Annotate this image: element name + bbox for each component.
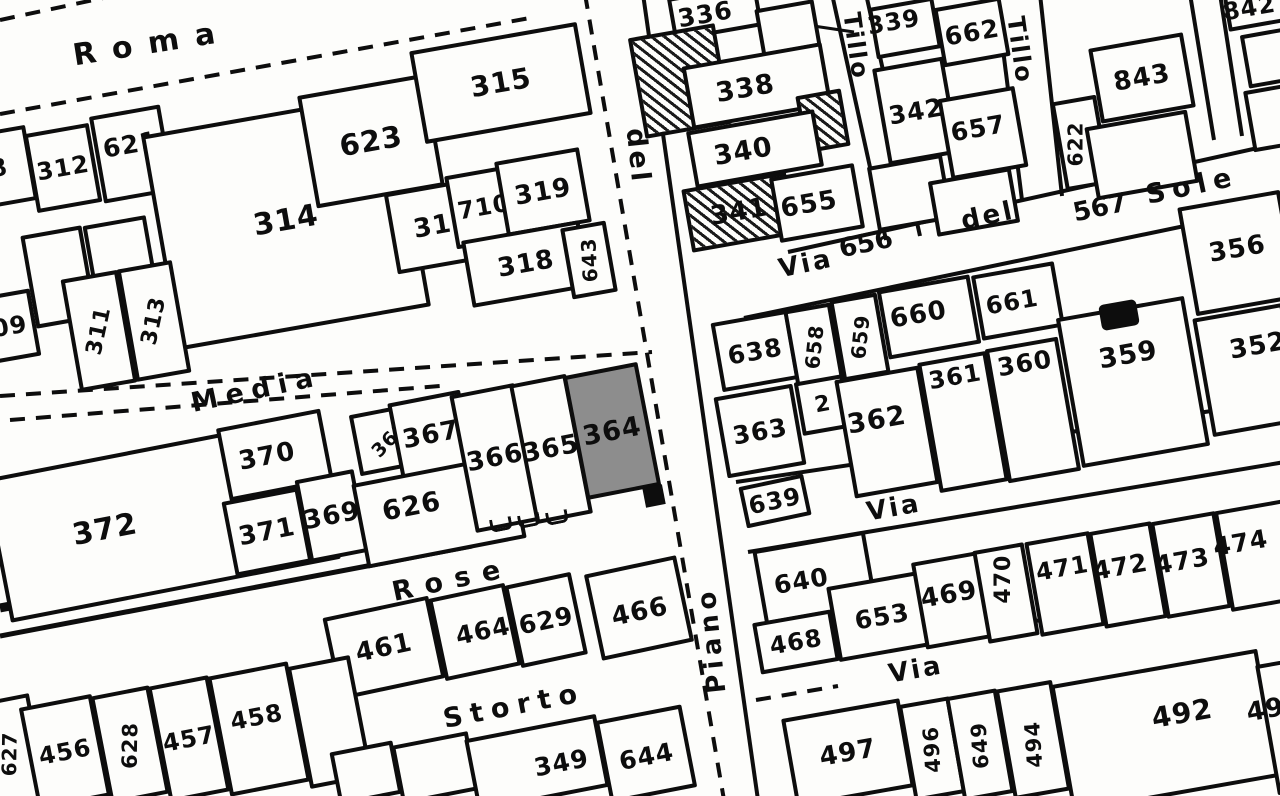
parcel-number: 627 bbox=[0, 731, 19, 776]
parcel-662: 662 bbox=[933, 0, 1010, 67]
parcel-number: 371 bbox=[236, 514, 297, 550]
parcel-number: 842 bbox=[1221, 0, 1277, 24]
parcel-number: 360 bbox=[995, 346, 1054, 380]
parcel-number: 311 bbox=[83, 305, 115, 357]
parcel-number: 364 bbox=[580, 412, 643, 450]
parcel-number: 492 bbox=[1150, 695, 1215, 733]
parcel-number: 338 bbox=[714, 70, 777, 107]
parcel-657: 657 bbox=[937, 86, 1028, 180]
parcel-number: 461 bbox=[353, 629, 414, 666]
parcel-number: 342 bbox=[887, 94, 946, 128]
parcel-number: 313 bbox=[138, 295, 170, 347]
parcel-number: 349 bbox=[532, 745, 591, 780]
parcel-number: 369 bbox=[301, 498, 362, 534]
parcel-number: 363 bbox=[731, 414, 790, 448]
parcel-number: 494 bbox=[1022, 720, 1046, 768]
parcel-number: 497 bbox=[818, 735, 879, 771]
parcel-number: 8 bbox=[0, 155, 10, 182]
parcel-number: 367 bbox=[400, 417, 461, 453]
parcel-number: 457 bbox=[161, 722, 218, 756]
parcel-number: 659 bbox=[848, 314, 873, 361]
parcel-number: 473 bbox=[1153, 543, 1212, 577]
parcel-number: 361 bbox=[927, 360, 983, 393]
cadastral-map: 8312621314623315317710319318643309311313… bbox=[0, 0, 1280, 796]
parcel-number: 623 bbox=[337, 121, 405, 161]
parcel-number: 315 bbox=[468, 64, 533, 102]
parcel-number: 469 bbox=[919, 577, 980, 613]
parcel-number: 628 bbox=[119, 721, 141, 768]
parcel-number: 496 bbox=[920, 725, 944, 773]
parcel-number: 655 bbox=[779, 187, 840, 223]
parcel-number: 319 bbox=[513, 174, 574, 210]
parcel-number: 629 bbox=[516, 602, 575, 638]
parcel-number: 470 bbox=[993, 555, 1015, 604]
parcel-number: 471 bbox=[1034, 552, 1090, 585]
parcel-number: 365 bbox=[520, 431, 581, 467]
parcel-number: 639 bbox=[747, 484, 804, 519]
parcel-number: 468 bbox=[768, 626, 824, 659]
parcel-number: 458 bbox=[228, 700, 285, 734]
parcel-number: 359 bbox=[1097, 336, 1160, 373]
parcel-363: 363 bbox=[713, 384, 806, 479]
parcel-number: 314 bbox=[251, 201, 321, 242]
parcel-number: 638 bbox=[726, 334, 785, 368]
parcel-number: 626 bbox=[380, 487, 443, 525]
parcel-number: 318 bbox=[496, 246, 557, 282]
parcel-356: 356 bbox=[1177, 190, 1280, 316]
parcel-number: 339 bbox=[866, 5, 922, 38]
parcel-number: 372 bbox=[70, 509, 140, 551]
parcel-number: 352 bbox=[1228, 328, 1280, 364]
parcel-number: 843 bbox=[1112, 60, 1173, 96]
parcel-number: 649 bbox=[968, 721, 992, 769]
parcel-number: 658 bbox=[802, 324, 827, 371]
parcel-644: 644 bbox=[595, 704, 697, 796]
parcel-number: 2 bbox=[813, 393, 833, 417]
street-boundary-dashed-line bbox=[756, 686, 838, 700]
parcel-number: 661 bbox=[984, 286, 1040, 319]
parcel-number: 474 bbox=[1211, 525, 1270, 559]
street-boundary-line bbox=[1190, 0, 1214, 140]
parcel-number: 622 bbox=[1065, 122, 1085, 167]
street-name-label-del: del bbox=[622, 127, 655, 185]
parcel-number: 370 bbox=[237, 438, 298, 474]
parcel-number: 657 bbox=[949, 111, 1008, 145]
corner-building-mark bbox=[642, 484, 665, 507]
parcel-number: 309 bbox=[0, 312, 29, 345]
parcel-number: 466 bbox=[609, 593, 670, 630]
parcel-number: 640 bbox=[772, 563, 831, 597]
parcel-number: 340 bbox=[712, 133, 775, 170]
parcel-number: 660 bbox=[888, 297, 949, 333]
parcel-312: 312 bbox=[24, 123, 103, 213]
parcel-number: 456 bbox=[37, 735, 94, 769]
parcel-number: 472 bbox=[1091, 549, 1150, 583]
parcel-number: 662 bbox=[943, 15, 1002, 49]
parcel-number: 341 bbox=[709, 194, 770, 230]
street-boundary-line bbox=[1040, 0, 1062, 196]
parcel-number: 362 bbox=[845, 401, 908, 438]
parcel-number: 312 bbox=[35, 152, 91, 185]
parcel-number: 653 bbox=[853, 599, 912, 633]
street-boundary-dashed-line bbox=[0, 0, 150, 20]
parcel-number: 644 bbox=[617, 738, 676, 773]
parcel-number: 366 bbox=[464, 440, 525, 476]
parcel-number: 356 bbox=[1207, 231, 1268, 267]
parcel-number: 464 bbox=[453, 612, 512, 648]
parcel-number: 643 bbox=[578, 237, 600, 283]
